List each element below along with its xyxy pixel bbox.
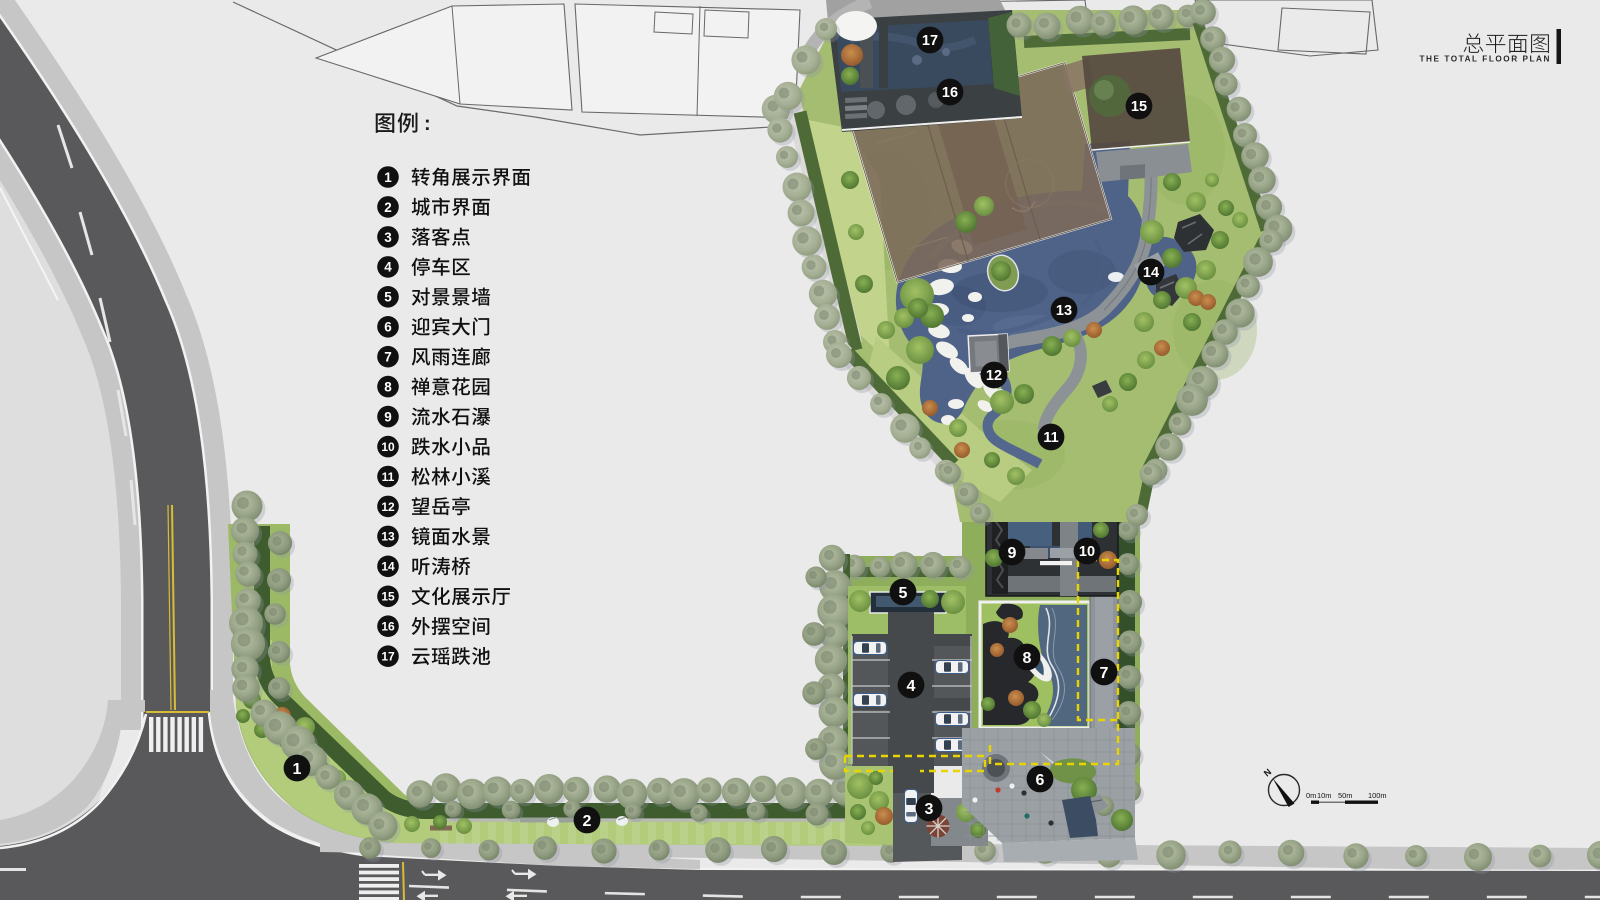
svg-text:17: 17 [922, 33, 938, 49]
svg-text:10m: 10m [1317, 791, 1331, 800]
svg-text:7: 7 [384, 350, 392, 365]
svg-text:15: 15 [1131, 99, 1147, 115]
svg-text:8: 8 [384, 380, 392, 395]
svg-text:100m: 100m [1368, 791, 1387, 800]
svg-text:7: 7 [1100, 665, 1109, 682]
svg-text:13: 13 [381, 530, 395, 544]
svg-text:0m: 0m [1306, 791, 1316, 800]
svg-text:1: 1 [293, 761, 302, 778]
svg-text:8: 8 [1023, 650, 1032, 667]
svg-text:11: 11 [1043, 430, 1058, 446]
svg-text:THE TOTAL FLOOR PLAN: THE TOTAL FLOOR PLAN [1419, 55, 1551, 64]
svg-text:14: 14 [1143, 265, 1159, 281]
svg-text:4: 4 [907, 678, 916, 695]
svg-text:9: 9 [384, 410, 392, 425]
svg-text:17: 17 [381, 650, 395, 664]
svg-text:5: 5 [384, 290, 392, 305]
svg-text:2: 2 [384, 200, 392, 215]
svg-text:5: 5 [899, 585, 908, 602]
svg-text:12: 12 [986, 368, 1002, 384]
svg-text:15: 15 [381, 590, 395, 604]
svg-text:13: 13 [1056, 303, 1072, 319]
svg-text:3: 3 [384, 230, 392, 245]
svg-text:3: 3 [925, 801, 934, 818]
svg-text:10: 10 [381, 440, 395, 454]
svg-text:50m: 50m [1338, 791, 1352, 800]
svg-text:6: 6 [1036, 772, 1045, 789]
svg-text:12: 12 [381, 500, 395, 514]
svg-text:1: 1 [384, 170, 392, 185]
svg-text:2: 2 [583, 813, 592, 830]
svg-text:10: 10 [1079, 544, 1095, 560]
svg-text:4: 4 [384, 260, 392, 275]
svg-text:14: 14 [381, 560, 395, 574]
svg-text:16: 16 [942, 85, 958, 101]
svg-text:6: 6 [384, 320, 392, 335]
svg-text:9: 9 [1008, 545, 1017, 562]
svg-text:16: 16 [381, 620, 395, 634]
svg-text:11: 11 [382, 470, 395, 484]
svg-text::: : [424, 113, 431, 135]
